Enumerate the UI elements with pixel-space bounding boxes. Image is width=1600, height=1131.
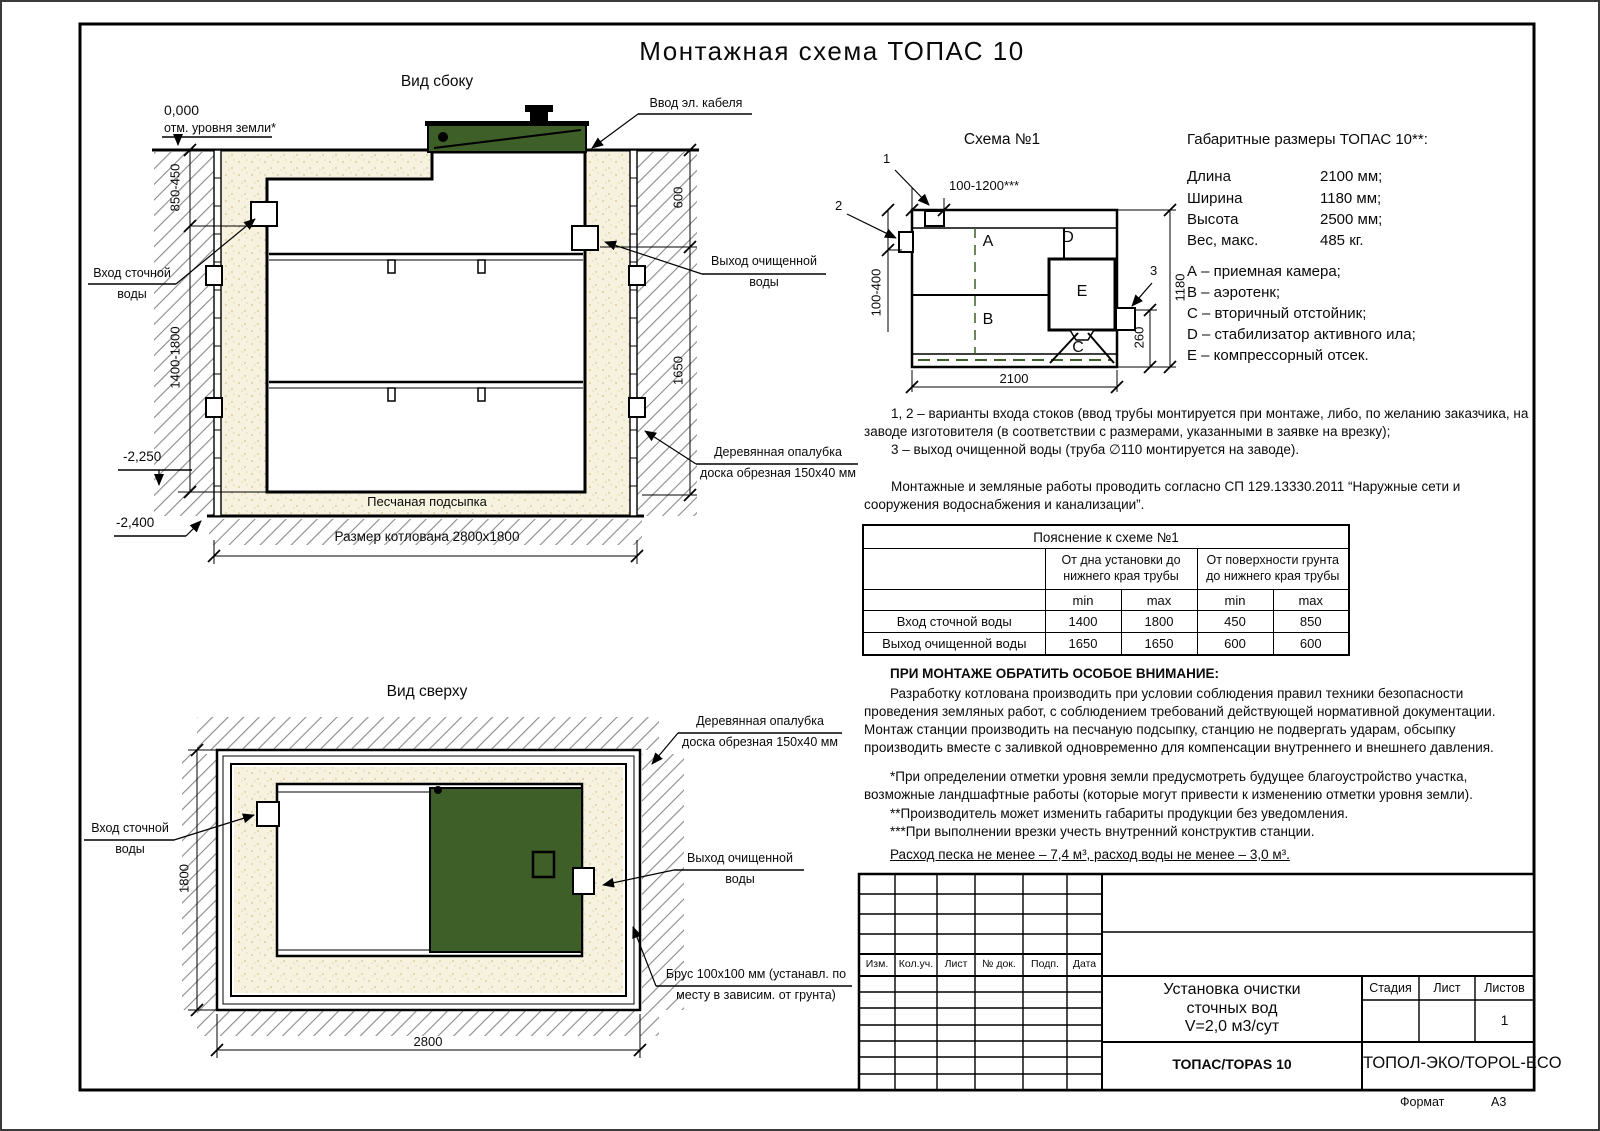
spec-label: Вес, макс. bbox=[1187, 232, 1258, 251]
table-subheader: max bbox=[1121, 590, 1197, 611]
legend-item: E – компрессорный отсек. bbox=[1187, 347, 1369, 366]
row-value: 850 bbox=[1273, 611, 1349, 633]
table-corner bbox=[863, 549, 1045, 590]
stamp-header-koluch: Кол.уч. bbox=[895, 958, 937, 971]
mark-2400: -2,400 bbox=[116, 515, 154, 532]
table-row: Выход очищенной воды 1650 1650 600 600 bbox=[863, 633, 1349, 656]
marker-3: 3 bbox=[1150, 263, 1157, 279]
table-subheader: min bbox=[1045, 590, 1121, 611]
table-group-header: От дна установки до нижнего края трубы bbox=[1045, 549, 1197, 590]
attention-footnote-1: *При определении отметки уровня земли пр… bbox=[864, 768, 1538, 804]
row-value: 1650 bbox=[1045, 633, 1121, 656]
page-title: Монтажная схема ТОПАС 10 bbox=[632, 36, 1032, 67]
sheet-label: Лист bbox=[1419, 981, 1475, 997]
row-name: Вход сточной воды bbox=[863, 611, 1045, 633]
format-label: Формат bbox=[1400, 1095, 1444, 1111]
pit-size-label: Размер котлована 2800х1800 bbox=[310, 529, 544, 546]
table-group-header: От поверхности грунта до нижнего края тр… bbox=[1197, 549, 1349, 590]
dim-850-450: 850-450 bbox=[168, 148, 183, 228]
stamp-header-list: Лист bbox=[937, 958, 975, 971]
beam-label: месту в зависим. от грунта) bbox=[656, 988, 856, 1004]
formwork-label: Деревянная опалубка bbox=[700, 445, 856, 461]
table-row: Вход сточной воды 1400 1800 450 850 bbox=[863, 611, 1349, 633]
outlet-label: Выход очищенной bbox=[702, 254, 826, 270]
attention-footnote-2: **Производитель может изменить габариты … bbox=[864, 805, 1538, 823]
stage-label: Стадия bbox=[1362, 981, 1419, 997]
outlet-label: воды bbox=[702, 275, 826, 291]
table-corner bbox=[863, 590, 1045, 611]
row-value: 1650 bbox=[1121, 633, 1197, 656]
table-subheader: min bbox=[1197, 590, 1273, 611]
marker-1: 1 bbox=[883, 151, 890, 167]
stamp-header-izm: Изм. bbox=[859, 958, 895, 971]
table-title: Пояснение к схеме №1 bbox=[863, 525, 1349, 549]
legend-item: А – приемная камера; bbox=[1187, 263, 1341, 282]
note-variants-2: 3 – выход очищенной воды (труба ∅110 мон… bbox=[864, 441, 1534, 459]
tank-lid-top bbox=[430, 788, 582, 952]
vent-pipe bbox=[530, 110, 548, 124]
cable-label: Ввод эл. кабеля bbox=[638, 96, 754, 112]
attention-body: Разработку котлована производить при усл… bbox=[864, 685, 1538, 757]
stamp-header-podp: Подп. bbox=[1023, 958, 1067, 971]
inlet-label-top: воды bbox=[84, 842, 176, 858]
side-view-title: Вид сбоку bbox=[357, 72, 517, 91]
outlet-label-top: Выход очищенной bbox=[674, 851, 806, 867]
chamber-c: С bbox=[1068, 338, 1088, 358]
spec-label: Высота bbox=[1187, 211, 1239, 230]
inlet-pipe bbox=[251, 202, 277, 226]
dim-1180: 1180 bbox=[1173, 248, 1188, 328]
outlet-pipe bbox=[572, 226, 598, 250]
spec-value: 1180 мм; bbox=[1320, 190, 1381, 209]
zero-mark: 0,000 bbox=[164, 102, 199, 120]
product-name: ТОПАС/TOPAS 10 bbox=[1104, 1056, 1360, 1074]
inlet-label: воды bbox=[86, 287, 178, 303]
specs-heading: Габаритные размеры ТОПАС 10**: bbox=[1187, 131, 1428, 150]
outlet-label-top: воды bbox=[674, 872, 806, 888]
table-subheader: max bbox=[1273, 590, 1349, 611]
legend-item: В – аэротенк; bbox=[1187, 284, 1280, 303]
row-value: 1800 bbox=[1121, 611, 1197, 633]
chamber-e: E bbox=[1072, 282, 1092, 302]
formwork-label: доска обрезная 150х40 мм bbox=[694, 466, 862, 482]
tank-lid bbox=[428, 124, 586, 152]
sand-label-text: Песчаная подсыпка bbox=[364, 494, 490, 509]
doc-title-line: V=2,0 м3/сут bbox=[1104, 1017, 1360, 1037]
dim-100-1200: 100-1200*** bbox=[949, 178, 1019, 194]
doc-title-line: сточных вод bbox=[1104, 999, 1360, 1019]
dim-260: 260 bbox=[1132, 298, 1147, 378]
chamber-a: А bbox=[978, 232, 998, 252]
row-value: 1400 bbox=[1045, 611, 1121, 633]
spec-label: Длина bbox=[1187, 168, 1231, 187]
stamp-header-ndok: № док. bbox=[975, 958, 1023, 971]
row-name: Выход очищенной воды bbox=[863, 633, 1045, 656]
company-name: ТОПОЛ-ЭКО/TOPOL-ECO bbox=[1363, 1053, 1534, 1074]
dim-100-400: 100-400 bbox=[869, 253, 884, 333]
dim-1400-1800: 1400-1800 bbox=[168, 318, 183, 398]
dim-1650: 1650 bbox=[671, 331, 686, 411]
row-value: 450 bbox=[1197, 611, 1273, 633]
attention-heading: ПРИ МОНТАЖЕ ОБРАТИТЬ ОСОБОЕ ВНИМАНИЕ: bbox=[890, 666, 1219, 683]
attention-footnote-3: ***При выполнении врезки учесть внутренн… bbox=[864, 823, 1538, 841]
dim-2100: 2100 bbox=[964, 371, 1064, 387]
row-value: 600 bbox=[1197, 633, 1273, 656]
top-view-title: Вид сверху bbox=[347, 682, 507, 701]
zero-note: отм. уровня земли* bbox=[164, 121, 276, 137]
legend-item: D – стабилизатор активного ила; bbox=[1187, 326, 1416, 345]
inlet-pipe-top bbox=[257, 802, 279, 826]
note-variants-1: 1, 2 – варианты входа стоков (ввод трубы… bbox=[864, 405, 1534, 441]
note-sp: Монтажные и земляные работы проводить со… bbox=[864, 478, 1534, 514]
dim-2800: 2800 bbox=[378, 1034, 478, 1050]
mark-2250: -2,250 bbox=[123, 449, 161, 466]
schema-title: Схема №1 bbox=[922, 130, 1082, 149]
spec-value: 2100 мм; bbox=[1320, 168, 1382, 187]
outlet-pipe-top bbox=[573, 868, 594, 894]
consumption-note: Расход песка не менее – 7,4 м³, расход в… bbox=[890, 847, 1290, 864]
marker-2: 2 bbox=[835, 198, 842, 214]
inlet-label-top: Вход сточной bbox=[84, 821, 176, 837]
doc-title-line: Установка очистки bbox=[1104, 980, 1360, 1000]
sheets-value: 1 bbox=[1475, 1012, 1534, 1030]
inlet-label: Вход сточной bbox=[86, 266, 178, 282]
drawing-sheet: Монтажная схема ТОПАС 10 Вид сбоку 0,000… bbox=[0, 0, 1600, 1131]
explanation-table: Пояснение к схеме №1 От дна установки до… bbox=[862, 524, 1350, 656]
format-value: А3 bbox=[1491, 1095, 1506, 1111]
spec-value: 485 кг. bbox=[1320, 232, 1364, 251]
dim-1800: 1800 bbox=[177, 839, 192, 919]
stamp-header-data: Дата bbox=[1067, 958, 1102, 971]
formwork-label-top: Деревянная опалубка bbox=[680, 714, 840, 730]
dim-600: 600 bbox=[671, 158, 686, 238]
spec-value: 2500 мм; bbox=[1320, 211, 1382, 230]
beam-label: Брус 100х100 мм (устанавл. по bbox=[656, 967, 856, 983]
sheets-label: Листов bbox=[1475, 981, 1534, 997]
tank-body bbox=[267, 152, 585, 492]
chamber-d: D bbox=[1058, 228, 1078, 248]
chamber-b: В bbox=[978, 310, 998, 330]
sand-label: Песчаная подсыпка bbox=[342, 494, 512, 510]
row-value: 600 bbox=[1273, 633, 1349, 656]
spec-label: Ширина bbox=[1187, 190, 1242, 209]
schema-art bbox=[847, 170, 1176, 393]
formwork-label-top: доска обрезная 150х40 мм bbox=[674, 735, 846, 751]
legend-item: С – вторичный отстойник; bbox=[1187, 305, 1366, 324]
